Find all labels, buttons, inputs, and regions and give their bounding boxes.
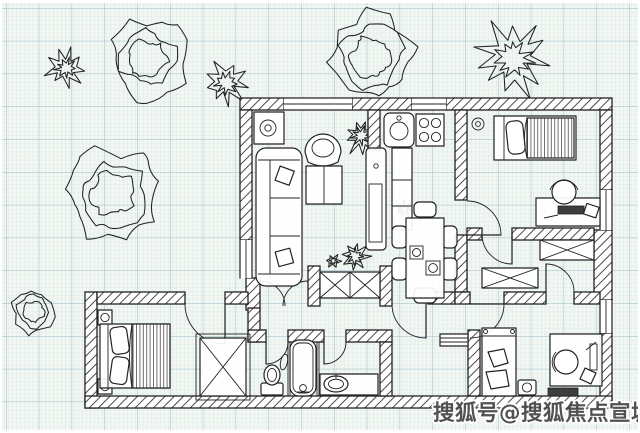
tv-cabinet xyxy=(366,148,386,250)
sofa xyxy=(256,148,302,286)
shoe-cabinet-x xyxy=(320,272,380,298)
stove xyxy=(416,114,444,146)
bathtub xyxy=(290,340,316,396)
washer xyxy=(518,380,536,395)
watermark-text: 搜狐号@搜狐焦点宣城站 xyxy=(433,400,640,426)
wardrobe-x-2 xyxy=(482,268,538,288)
wardrobe-master xyxy=(196,334,250,400)
corner-cabinet xyxy=(254,112,284,144)
window-living-left xyxy=(240,240,252,278)
window-bedroom1-right xyxy=(600,190,612,230)
dining-table xyxy=(406,218,444,298)
dining-chair xyxy=(414,202,436,217)
wardrobe-x-1 xyxy=(540,240,594,260)
bathroom-sink xyxy=(320,374,378,395)
hall-rack xyxy=(440,334,468,346)
window-bedroom2-right xyxy=(600,300,612,333)
window-kitchen-top xyxy=(412,98,446,110)
armchair xyxy=(305,134,341,166)
kitchen-sink xyxy=(384,113,414,147)
window-living-top xyxy=(284,98,352,110)
floorplan-drawing: 搜狐号@搜狐焦点宣城站 xyxy=(0,0,640,433)
bed-single-2 xyxy=(482,328,516,396)
floorplan-canvas: 搜狐号@搜狐焦点宣城站 xyxy=(0,0,640,433)
bed-single-1 xyxy=(494,116,576,160)
bed-double xyxy=(100,324,170,388)
dining-chair xyxy=(392,258,407,280)
coffee-table xyxy=(306,166,342,204)
nightstand xyxy=(98,310,112,325)
dining-chair xyxy=(392,226,407,248)
